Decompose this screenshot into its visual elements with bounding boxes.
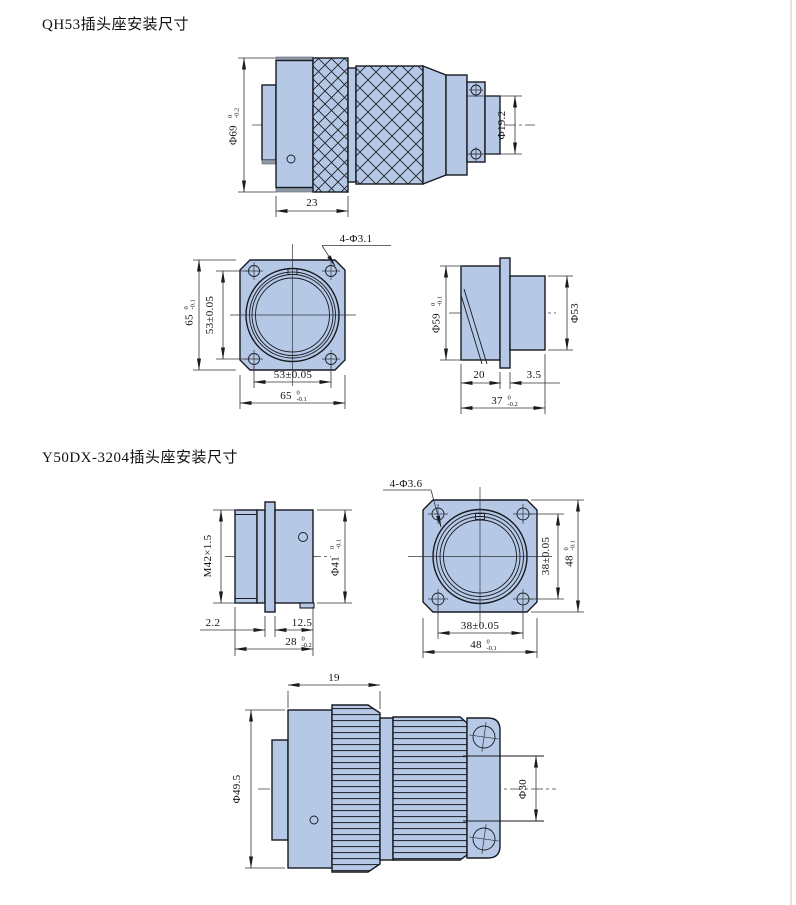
dim-value: 65 (184, 314, 196, 326)
knurl-pattern-2 (356, 66, 423, 184)
dim-value: 53±0.05 (204, 296, 216, 335)
dim-phi30: Φ30 (517, 756, 536, 821)
knurl-divider (348, 68, 356, 182)
dim-label-28: 28 0 -0.2 (285, 636, 312, 650)
dim-value: Φ19.2 (496, 111, 508, 140)
mounting-flange (265, 502, 275, 612)
dim-28: 28 0 -0.2 (235, 636, 313, 650)
callout-text: 4-Φ3.6 (390, 478, 423, 490)
y50dx-plug-side-view: 19 Φ49.5 Φ30 (231, 672, 556, 872)
tolerance-lower: -0.1 (336, 539, 343, 549)
dim-value: Φ59 (431, 313, 443, 333)
tolerance-lower: -0.2 (508, 401, 518, 408)
dim-label-phi41: Φ41 0 -0.1 (329, 539, 343, 576)
rear-body (275, 510, 313, 603)
dim-label-48h: 48 0 -0.1 (470, 639, 497, 653)
dim-value: Φ49.5 (231, 774, 243, 803)
dim-label-65h: 65 0 -0.1 (280, 390, 307, 404)
coupling-divider (380, 718, 393, 860)
dim-label-37: 37 0 -0.2 (491, 395, 518, 409)
qh53-receptacle-side-view: Φ59 0 -0.1 Φ53 20 3.5 (430, 258, 581, 414)
dim-value: 48 (564, 555, 576, 567)
dim-value: M42×1.5 (202, 534, 214, 577)
dim-value: 28 (285, 636, 297, 648)
dim-value: 12.5 (292, 617, 313, 629)
dim-v48: 48 0 -0.1 (531, 500, 584, 612)
dim-label-phi59: Φ59 0 -0.1 (430, 296, 444, 333)
drawing-page: QH53插头座安装尺寸 Y50DX-3204插头座安装尺寸 (0, 0, 796, 905)
dim-value: 23 (306, 197, 318, 209)
dim-label-48v: 48 0 -0.1 (563, 540, 577, 567)
tolerance-lower: -0.2 (302, 642, 312, 649)
rear-step-shadow (262, 160, 276, 164)
dim-3-5: 3.5 (510, 369, 560, 383)
dim-12-5: 12.5 (275, 617, 313, 630)
neck-section (446, 75, 467, 175)
dim-value: 3.5 (527, 369, 542, 381)
dim-phi53: Φ53 (548, 276, 581, 350)
dim-value: Φ41 (330, 556, 342, 576)
dim-value: 65 (280, 390, 292, 402)
dim-value: Φ30 (517, 779, 529, 799)
knurl-pattern-1 (313, 58, 348, 192)
technical-drawing-canvas: Φ69 0 -0.2 Φ19.2 23 (0, 0, 796, 905)
mid-collar (257, 510, 265, 603)
rear-step (272, 740, 288, 840)
dim-value: Φ69 (228, 125, 240, 145)
dim-value: 20 (473, 369, 485, 381)
qh53-side-view: Φ69 0 -0.2 Φ19.2 23 (227, 57, 535, 217)
dim-value: 2.2 (206, 617, 221, 629)
rear-cylinder (510, 276, 545, 350)
qh53-front-view: 4-Φ3.1 65 0 -0.1 53±0.05 (183, 233, 391, 409)
dim-phi41: Φ41 0 -0.1 (317, 510, 352, 603)
callout-text: 4-Φ3.1 (340, 233, 373, 245)
extension-lines (531, 500, 584, 612)
tolerance-lower: -0.1 (570, 540, 577, 550)
ribs-pattern-2 (393, 717, 467, 860)
dim-value: 37 (491, 395, 503, 407)
dim-23: 23 (276, 196, 348, 217)
y50dx-side-view: M42×1.5 Φ41 0 -0.1 2.2 12.5 (200, 502, 352, 656)
dim-label-65: 65 0 -0.1 (183, 299, 197, 326)
y50dx-front-view: 4-Φ3.6 38±0.05 48 0 -0.1 (383, 478, 584, 658)
tolerance-lower: -0.2 (234, 108, 241, 118)
tolerance-lower: -0.1 (487, 645, 497, 652)
rear-step (262, 85, 276, 160)
tolerance-lower: -0.1 (437, 296, 444, 306)
threaded-section (235, 510, 257, 603)
dim-label-phi69: Φ69 0 -0.2 (227, 108, 241, 145)
shell-body (288, 710, 332, 868)
ribs-pattern-1 (332, 705, 380, 872)
taper-section (423, 66, 446, 184)
dim-value: 38±0.05 (540, 537, 552, 576)
tolerance-lower: -0.1 (297, 396, 307, 403)
shell-body (276, 61, 313, 188)
dim-value: 48 (470, 639, 482, 651)
dim-value: Φ53 (569, 303, 581, 323)
bottom-lug (300, 603, 314, 608)
mounting-flange (500, 258, 510, 368)
dim-value: 38±0.05 (461, 620, 500, 632)
dim-value: 53±0.05 (274, 369, 313, 381)
dim-19: 19 (288, 672, 380, 709)
tolerance-lower: -0.1 (190, 299, 197, 309)
dim-value: 19 (328, 672, 340, 684)
